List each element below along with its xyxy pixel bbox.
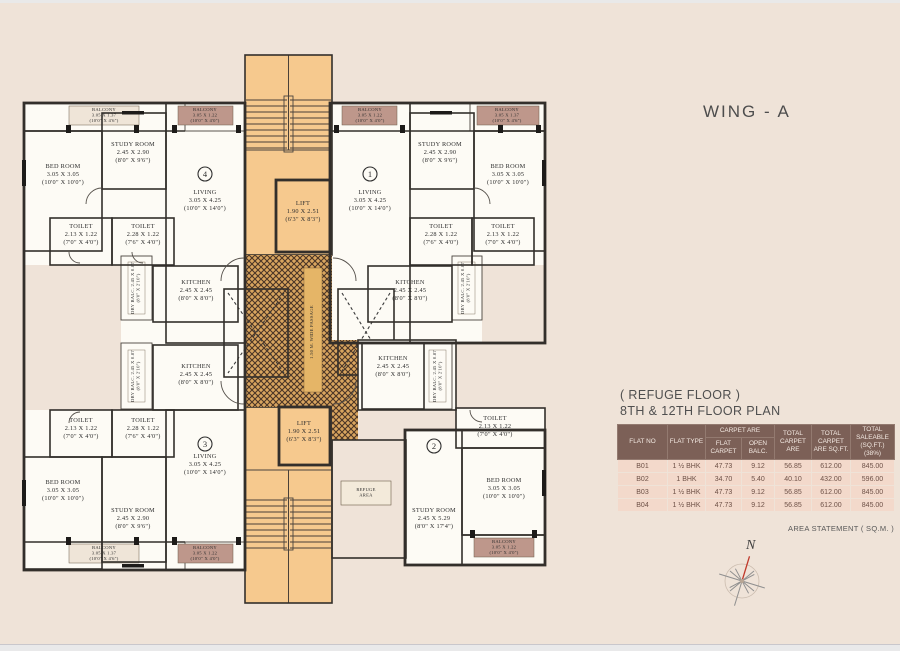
table-cell: 34.70 [706,473,742,486]
room-label: KITCHEN2.45 X 2.45(8'0" X 8'0") [178,279,213,302]
table-cell: 612.00 [812,486,851,499]
room-label: STUDY ROOM2.45 X 2.90(8'0" X 9'6") [111,507,155,530]
table-cell: 1 ½ BHK [668,486,706,499]
room-label: BED ROOM3.05 X 3.05(10'0" X 10'0") [42,479,84,502]
table-cell: 9.12 [742,499,775,512]
staircase-top [245,55,332,255]
room-label: KITCHEN2.45 X 2.45(8'0" X 8'0") [178,363,213,386]
col-total-carpet: TOTAL CARPET ARE [775,425,812,460]
area-statement-table: FLAT NO FLAT TYPE CARPET ARE TOTAL CARPE… [617,424,895,512]
room-label: BED ROOM3.05 X 3.05(10'0" X 10'0") [483,477,525,500]
room-label: BALCONY3.05 X 1.22(10'0" X 4'0") [355,107,384,123]
col-total-saleable: TOTAL SALEABLE (SQ.FT.) (38%) [851,425,895,460]
flat-number: 3 [203,439,207,449]
table-cell: 5.40 [742,473,775,486]
room-label: 1.50 M. WIDE PASSAGE [309,305,314,359]
floor-plan-drawing: BED ROOM3.05 X 3.05(10'0" X 10'0")STUDY … [0,0,620,650]
table-cell: 47.73 [706,499,742,512]
room-label: STUDY ROOM2.45 X 2.90(8'0" X 9'6") [111,141,155,164]
compass-north-label: N [745,538,756,553]
room-label: STUDY ROOM2.45 X 2.90(8'0" X 9'6") [418,141,462,164]
table-cell: 1 ½ BHK [668,499,706,512]
col-carpet-group: CARPET ARE [706,425,775,438]
table-cell: 47.73 [706,460,742,473]
room-label: BED ROOM3.05 X 3.05(10'0" X 10'0") [487,163,529,186]
room-label: KITCHEN2.45 X 2.45(8'0" X 8'0") [375,355,410,378]
plan-title: 8TH & 12TH FLOOR PLAN [620,404,781,418]
flat-number: 1 [368,169,372,179]
table-row: B031 ½ BHK47.739.1256.85612.00845.00 [618,486,895,499]
room-label: BALCONY3.05 X 1.37(10'0" X 4'6") [89,545,118,561]
table-cell: 845.00 [851,499,895,512]
table-cell: 56.85 [775,460,812,473]
table-row: B011 ½ BHK47.739.1256.85612.00845.00 [618,460,895,473]
flat-number: 2 [432,441,436,451]
room-label: BALCONY3.05 X 1.22(10'0" X 4'0") [190,545,219,561]
col-open-balc: OPEN BALC. [742,437,775,459]
col-flat-type: FLAT TYPE [668,425,706,460]
table-cell: 612.00 [812,499,851,512]
table-cell: 56.85 [775,486,812,499]
plan-subtitle-refuge: ( REFUGE FLOOR ) [620,388,740,402]
area-statement-caption: AREA STATEMENT ( SQ.M. ) [617,524,894,533]
table-cell: 56.85 [775,499,812,512]
col-total-carpet-sqft: TOTAL CARPET ARE SQ.FT. [812,425,851,460]
compass-rose: N [700,533,795,628]
table-cell: 9.12 [742,486,775,499]
room-label: BALCONY3.05 X 1.37(10'0" X 4'6") [492,107,521,123]
table-cell: 845.00 [851,460,895,473]
table-cell: 432.00 [812,473,851,486]
table-cell: B01 [618,460,668,473]
table-cell: 47.73 [706,486,742,499]
table-cell: 612.00 [812,460,851,473]
table-cell: 9.12 [742,460,775,473]
table-cell: 845.00 [851,486,895,499]
wing-title: WING - A [703,102,791,122]
table-cell: B03 [618,486,668,499]
col-flat-carpet: FLAT CARPET [706,437,742,459]
table-cell: B04 [618,499,668,512]
room-label: BALCONY3.05 X 1.22(10'0" X 4'0") [190,107,219,123]
room-label: STUDY ROOM2.45 X 5.29(8'0" X 17'4") [412,507,456,530]
room-label: KITCHEN2.45 X 2.45(8'0" X 8'0") [392,279,427,302]
refuge-area [332,440,406,558]
room-label: BALCONY3.05 X 1.37(10'0" X 4'6") [89,107,118,123]
table-cell: 40.10 [775,473,812,486]
table-cell: B02 [618,473,668,486]
area-table-body: B011 ½ BHK47.739.1256.85612.00845.00B021… [618,460,895,512]
col-flat-no: FLAT NO [618,425,668,460]
table-header: FLAT NO FLAT TYPE CARPET ARE TOTAL CARPE… [618,425,895,460]
table-row: B021 BHK34.705.4040.10432.00596.00 [618,473,895,486]
room-label: BED ROOM3.05 X 3.05(10'0" X 10'0") [42,163,84,186]
room-label: BALCONY3.05 X 1.22(10'0" X 4'0") [489,539,518,555]
table-cell: 1 ½ BHK [668,460,706,473]
table-cell: 596.00 [851,473,895,486]
table-cell: 1 BHK [668,473,706,486]
table-row: B041 ½ BHK47.739.1256.85612.00845.00 [618,499,895,512]
